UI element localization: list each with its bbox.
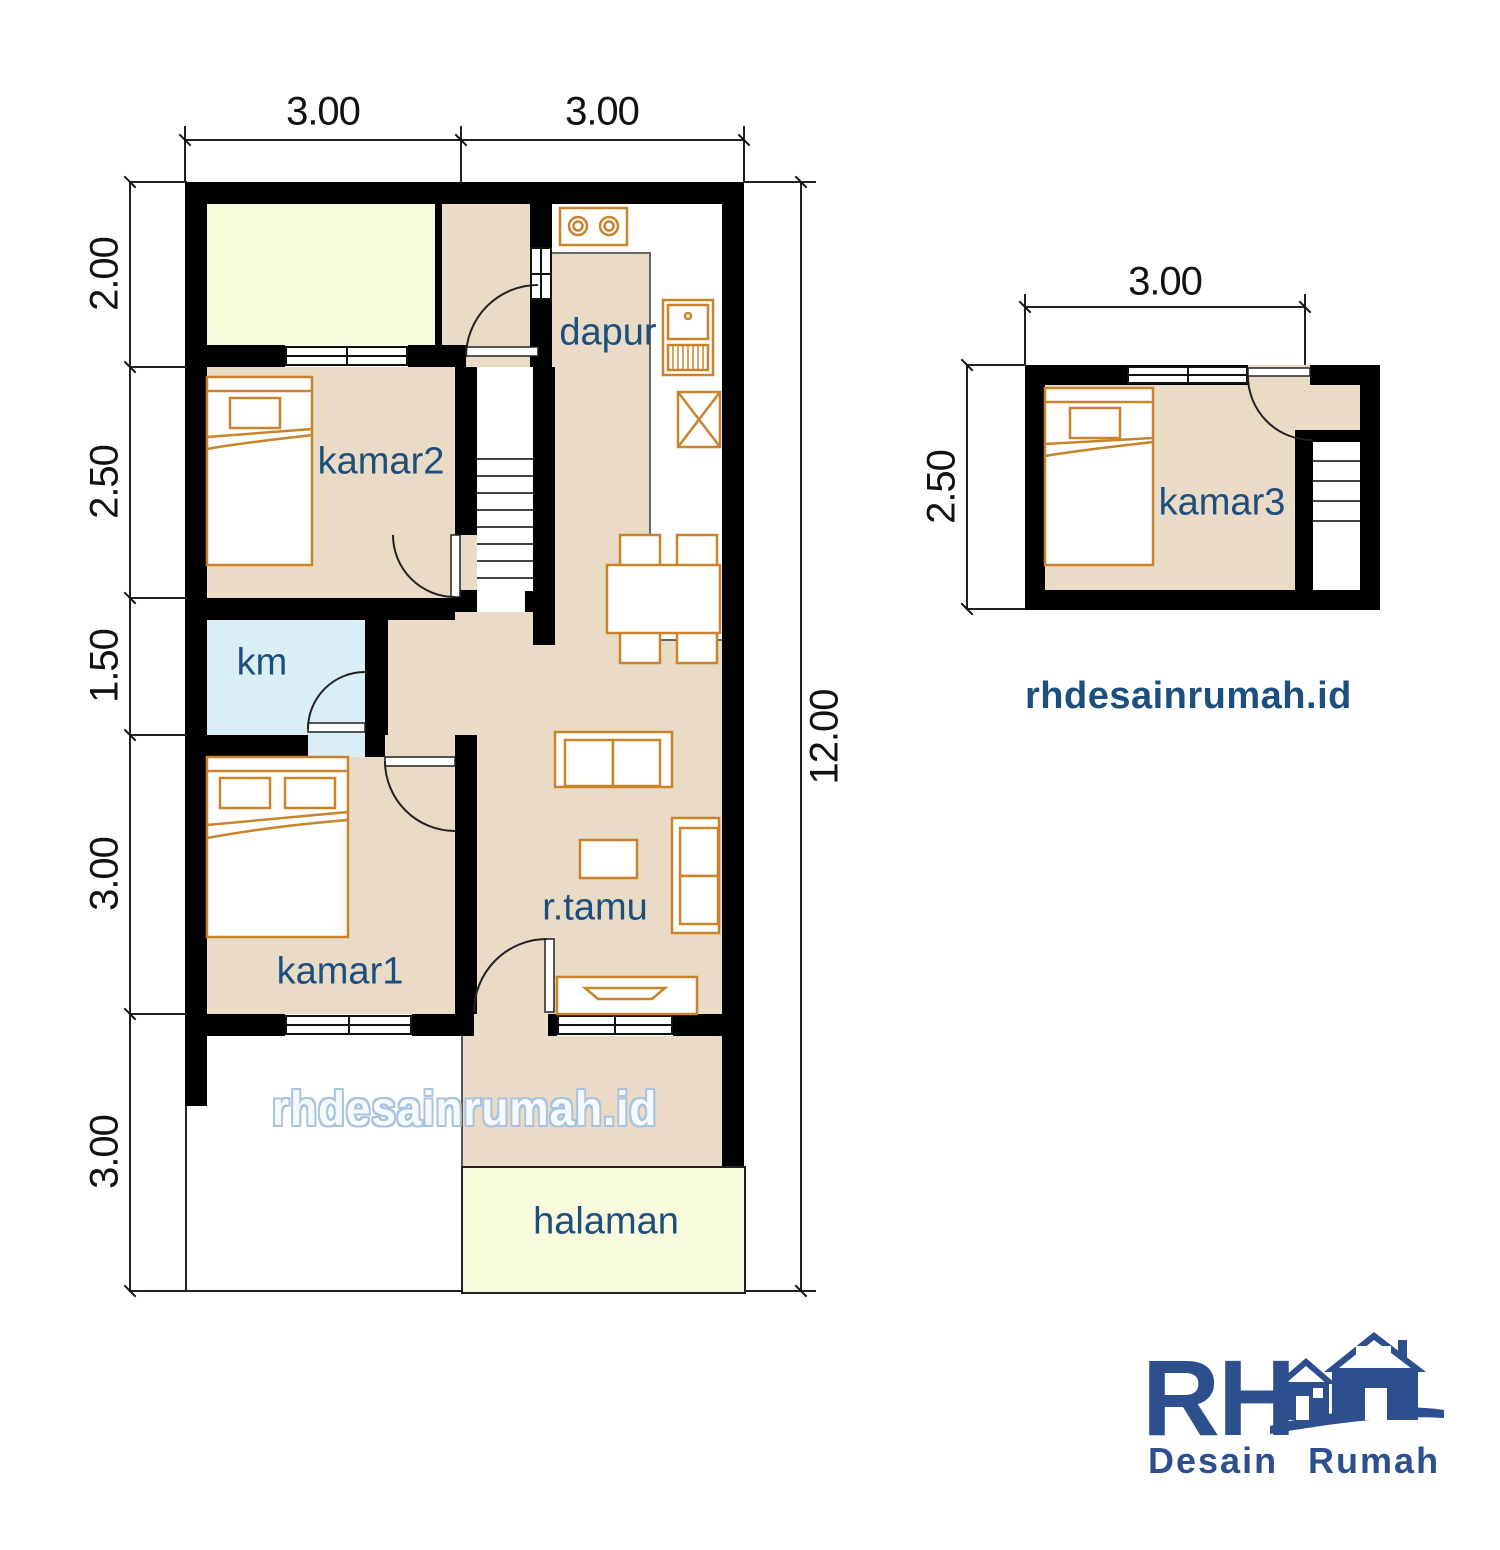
- dimension-label: 2.50: [920, 450, 965, 524]
- dim-ext: [966, 608, 1025, 610]
- dimension-label: 3.00: [286, 90, 360, 135]
- dim-ext: [184, 126, 186, 182]
- logo-name: Desain Rumah: [1148, 1440, 1440, 1482]
- dim-ext: [129, 1013, 187, 1015]
- dimension-label: 3.00: [83, 837, 128, 911]
- dimension-label: 3.00: [83, 1115, 128, 1189]
- room-label-halaman: halaman: [533, 1201, 679, 1244]
- dim-ext: [744, 1290, 816, 1292]
- dim-ext: [129, 734, 187, 736]
- watermark-text: rhdesainrumah.id: [272, 1082, 657, 1137]
- dim-line-top: [185, 139, 744, 141]
- tv-cabinet-icon: [557, 977, 697, 1014]
- logo-houses-icon: [1268, 1326, 1448, 1446]
- dining-set-icon: [607, 535, 720, 663]
- sink-icon: [663, 300, 713, 375]
- sofa-side-icon: [672, 818, 719, 933]
- bed-kamar2-icon: [207, 377, 312, 565]
- coffee-table-icon: [580, 840, 637, 878]
- sofa-icon: [555, 732, 672, 787]
- dimension-label: 3.00: [1128, 260, 1202, 305]
- door-swings: [308, 285, 1312, 1012]
- room-label-dapur: dapur: [559, 312, 656, 355]
- dim-line-k3-top: [1025, 306, 1305, 308]
- dim-line-k3-left: [966, 365, 968, 610]
- room-label-km: km: [237, 642, 288, 685]
- dimension-label: 12.00: [803, 689, 848, 784]
- dimension-label: 3.00: [565, 90, 639, 135]
- room-label-kamar3: kamar3: [1159, 482, 1286, 525]
- dimension-label: 2.00: [83, 237, 128, 311]
- bed-kamar1-icon: [207, 757, 348, 937]
- bed-kamar3-icon: [1045, 388, 1153, 565]
- dimension-label: 1.50: [83, 629, 128, 703]
- dim-ext: [966, 364, 1025, 366]
- fridge-icon: [678, 392, 720, 447]
- website-text: rhdesainrumah.id: [1025, 675, 1352, 718]
- dim-ext: [129, 366, 187, 368]
- dim-ext: [129, 181, 187, 183]
- dim-ext: [129, 597, 187, 599]
- dim-ext: [460, 126, 462, 182]
- room-label-kamar1: kamar1: [277, 951, 404, 994]
- dim-ext: [743, 126, 745, 182]
- stove-icon: [560, 208, 627, 245]
- dimension-label: 2.50: [83, 445, 128, 519]
- room-label-rtamu: r.tamu: [542, 887, 648, 930]
- furniture-layer: [0, 0, 1500, 1550]
- floor-plan-page: 3.00 3.00 2.00 2.50 1.50 3.00 3.00 12.00…: [0, 0, 1500, 1550]
- dim-ext: [129, 1290, 187, 1292]
- dim-ext: [744, 181, 816, 183]
- room-label-kamar2: kamar2: [318, 441, 445, 484]
